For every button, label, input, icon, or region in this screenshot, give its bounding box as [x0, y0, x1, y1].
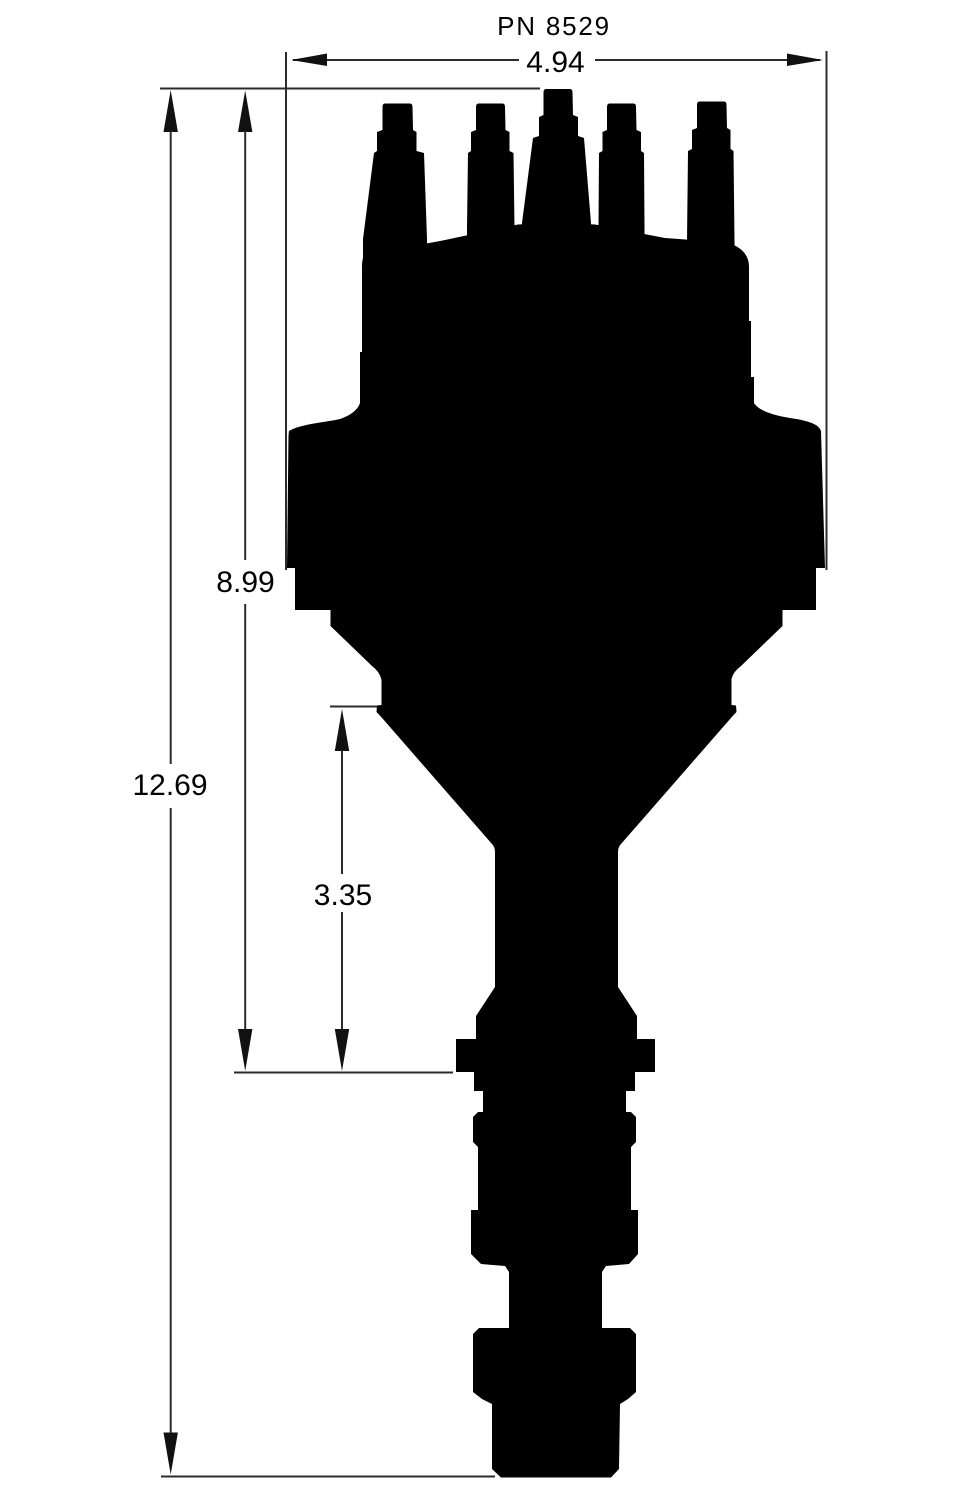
svg-text:4.94: 4.94 — [526, 46, 584, 79]
svg-text:8.99: 8.99 — [216, 566, 274, 599]
svg-text:3.35: 3.35 — [314, 879, 372, 912]
svg-text:PN 8529: PN 8529 — [497, 11, 611, 41]
svg-text:12.69: 12.69 — [132, 769, 207, 802]
